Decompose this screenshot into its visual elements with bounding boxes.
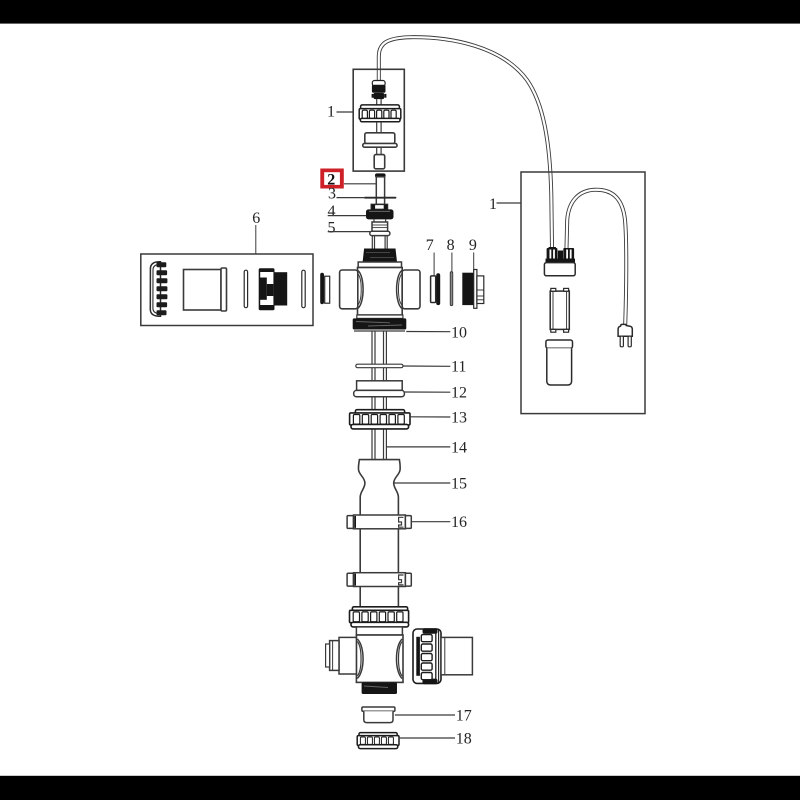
svg-text:6: 6: [252, 210, 260, 227]
svg-text:17: 17: [456, 707, 472, 724]
svg-text:1: 1: [327, 104, 335, 121]
svg-text:13: 13: [451, 410, 467, 427]
svg-text:11: 11: [451, 358, 466, 375]
svg-text:10: 10: [451, 324, 467, 341]
svg-text:12: 12: [451, 384, 467, 401]
svg-text:1: 1: [489, 196, 497, 213]
svg-text:5: 5: [328, 219, 336, 236]
svg-text:16: 16: [451, 514, 467, 531]
svg-text:7: 7: [426, 237, 434, 254]
svg-text:3: 3: [328, 185, 336, 202]
svg-text:9: 9: [469, 237, 477, 254]
svg-text:14: 14: [451, 439, 467, 456]
svg-text:18: 18: [456, 730, 472, 747]
svg-text:8: 8: [447, 237, 455, 254]
svg-text:15: 15: [451, 475, 467, 492]
svg-text:4: 4: [328, 203, 336, 220]
